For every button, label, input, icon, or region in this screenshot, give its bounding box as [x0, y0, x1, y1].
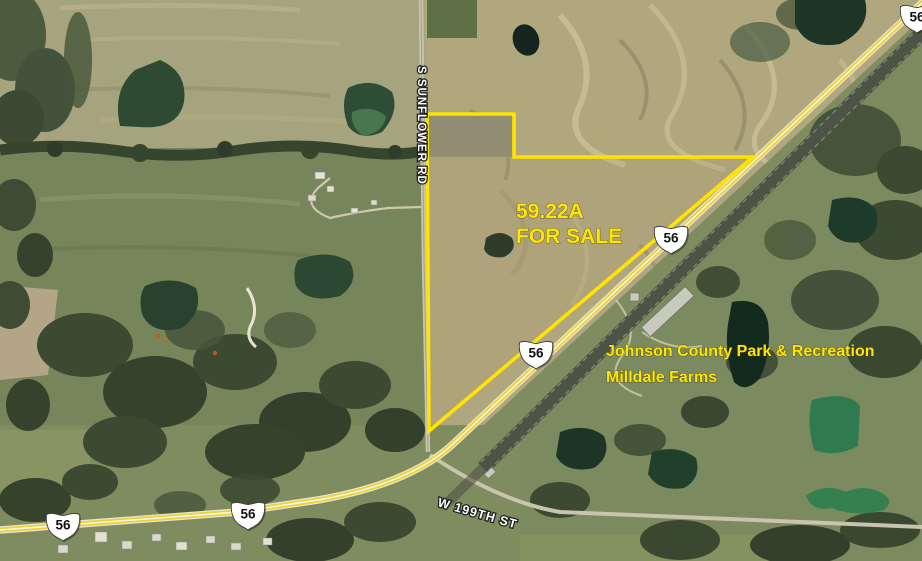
- shield-number: 56: [909, 10, 922, 25]
- pond-below-hwy-2: [648, 449, 698, 489]
- poi-label-line1: Johnson County Park & Recreation: [606, 343, 875, 360]
- shield-number: 56: [240, 507, 256, 522]
- sunflower-road-label: S SUNFLOWER RD: [415, 66, 427, 185]
- pond-farm: [294, 254, 353, 298]
- parcel-area-label: 59.22A: [516, 200, 584, 223]
- pond-below-hwy-1: [556, 428, 606, 470]
- pond-right: [828, 198, 877, 243]
- satellite-map-canvas[interactable]: 56 56 56 56 56 59.22A FOR SALE Johnson C…: [0, 0, 922, 561]
- poi-label-line2: Milldale Farms: [606, 369, 717, 386]
- shield-number: 56: [663, 231, 679, 246]
- shield-number: 56: [528, 346, 544, 361]
- shield-number: 56: [55, 518, 71, 533]
- pond-bottomright-1: [809, 396, 860, 453]
- parcel-status-label: FOR SALE: [516, 225, 622, 248]
